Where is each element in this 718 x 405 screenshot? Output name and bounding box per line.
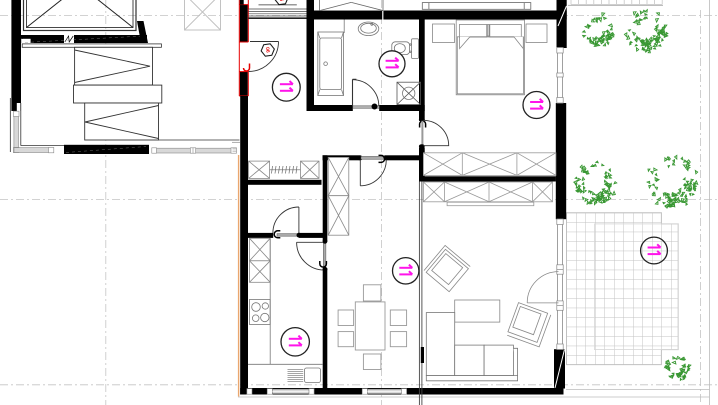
svg-text:90: 90 [265, 46, 272, 53]
svg-text:90: 90 [279, 0, 286, 1]
